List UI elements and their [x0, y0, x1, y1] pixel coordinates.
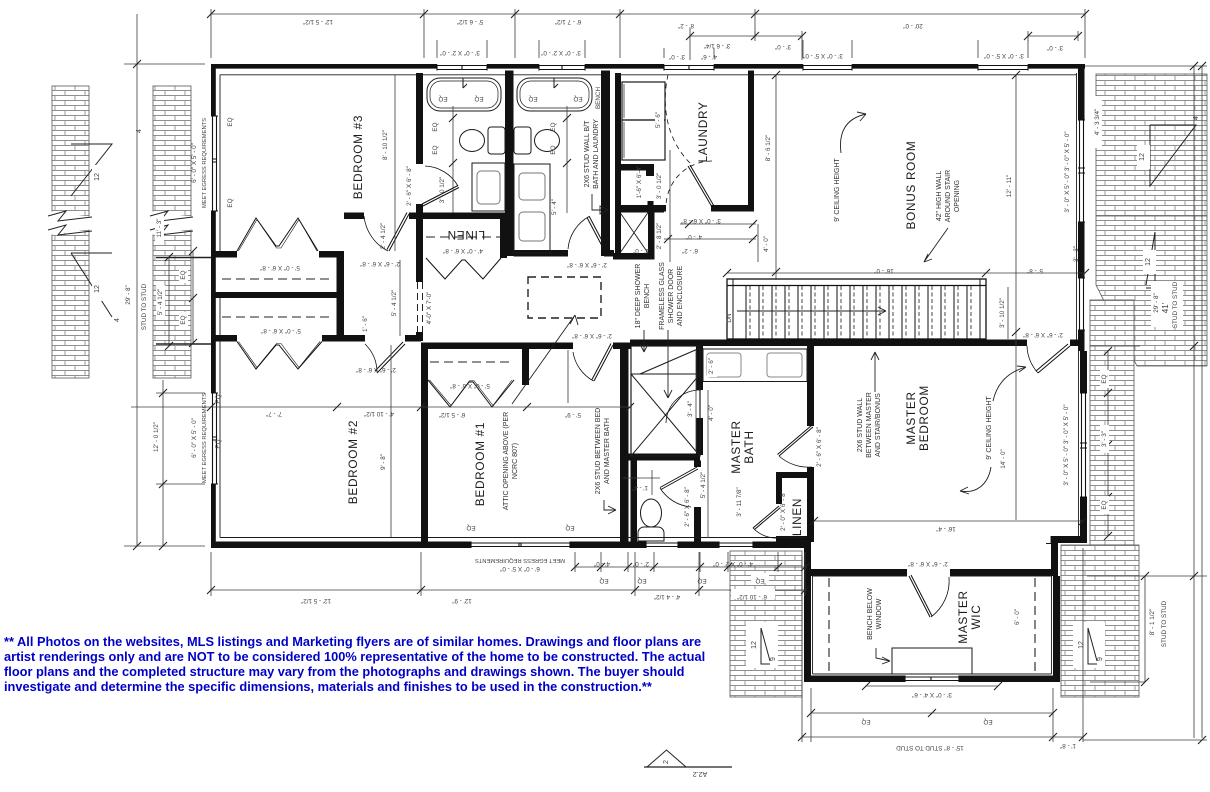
svg-text:2' - 6": 2' - 6" — [708, 358, 715, 374]
svg-text:2' - 0": 2' - 0" — [633, 560, 649, 567]
svg-text:8' - 2": 8' - 2" — [678, 22, 694, 29]
svg-text:5' - 4": 5' - 4" — [551, 199, 558, 215]
svg-text:14' - 0": 14' - 0" — [1000, 449, 1007, 469]
svg-text:STUD TO STUD: STUD TO STUD — [141, 283, 148, 330]
svg-text:EQ: EQ — [474, 95, 483, 102]
svg-text:3' - 0 1/2": 3' - 0 1/2" — [656, 173, 663, 200]
svg-text:2' - 0": 2' - 0" — [633, 247, 649, 254]
svg-text:8' - 10 1/2": 8' - 10 1/2" — [382, 130, 389, 160]
svg-text:9' CEILING HEIGHT: 9' CEILING HEIGHT — [986, 395, 993, 459]
svg-text:5' - 9": 5' - 9" — [565, 411, 581, 418]
svg-text:4' - 3 3/4": 4' - 3 3/4" — [1094, 109, 1101, 136]
svg-text:5' - 6 1/2": 5' - 6 1/2" — [457, 18, 484, 25]
svg-text:EQ: EQ — [599, 577, 608, 584]
svg-text:EQ: EQ — [697, 577, 706, 584]
svg-text:BEDROOM #2: BEDROOM #2 — [346, 420, 360, 504]
svg-text:9' - 8": 9' - 8" — [380, 454, 387, 470]
svg-text:12: 12 — [751, 641, 758, 649]
svg-text:12: 12 — [94, 173, 101, 181]
svg-text:3' - 0" X 5' - 0" 3' - 0" X 5: 3' - 0" X 5' - 0" 3' - 0" X 5' - 0" — [1063, 404, 1070, 485]
svg-text:LINEN: LINEN — [447, 228, 485, 242]
svg-text:MASTER: MASTER — [729, 420, 743, 473]
svg-text:3' - 0" X 2' - 0": 3' - 0" X 2' - 0" — [440, 49, 480, 56]
svg-text:EQ: EQ — [180, 315, 187, 324]
svg-text:6' - 10 1/2": 6' - 10 1/2" — [737, 593, 767, 600]
svg-text:STUD TO STUD: STUD TO STUD — [1172, 281, 1179, 328]
svg-text:18" DEEP SHOWER: 18" DEEP SHOWER — [635, 264, 642, 329]
svg-text:6' - 7 1/2": 6' - 7 1/2" — [555, 18, 582, 25]
svg-text:EQ: EQ — [550, 145, 557, 154]
svg-text:EQ: EQ — [755, 577, 764, 584]
svg-text:2' - 6" X 6' - 8": 2' - 6" X 6' - 8" — [360, 260, 400, 267]
svg-text:12: 12 — [1139, 153, 1146, 161]
svg-text:1' - 6": 1' - 6" — [362, 316, 369, 332]
svg-text:2' - 6" X 6' - 8": 2' - 6" X 6' - 8" — [567, 261, 607, 268]
svg-text:16' - 0": 16' - 0" — [874, 267, 894, 274]
svg-text:6' - 0" X 5' - 0": 6' - 0" X 5' - 0" — [191, 143, 198, 183]
svg-text:42" HIGH WALL: 42" HIGH WALL — [936, 171, 943, 222]
svg-text:12: 12 — [1078, 641, 1085, 649]
svg-text:12' - 11": 12' - 11" — [1006, 175, 1013, 198]
svg-text:artist renderings only and are: artist renderings only and are NOT to be… — [4, 649, 705, 664]
svg-text:ATTIC OPENING ABOVE (PER: ATTIC OPENING ABOVE (PER — [503, 412, 510, 510]
svg-text:floor plans and the completed: floor plans and the completed structure … — [4, 664, 684, 679]
svg-text:EQ: EQ — [227, 198, 234, 207]
svg-text:12' - 0 1/2": 12' - 0 1/2" — [153, 422, 160, 452]
svg-text:SHOWER DOOR: SHOWER DOOR — [668, 269, 675, 323]
svg-text:EQ: EQ — [565, 524, 574, 531]
svg-text:1' - 4": 1' - 4" — [632, 484, 648, 491]
svg-text:EQ: EQ — [215, 439, 222, 448]
svg-text:2' - 6" X 6' - 8": 2' - 6" X 6' - 8" — [816, 427, 823, 467]
svg-text:EQ: EQ — [573, 95, 582, 102]
svg-text:4' - 0" X 6' - 8": 4' - 0" X 6' - 8" — [443, 247, 483, 254]
svg-text:EQ: EQ — [432, 122, 439, 131]
svg-text:EQ: EQ — [528, 95, 537, 102]
svg-text:BENCH BELOW: BENCH BELOW — [867, 588, 874, 640]
svg-text:9: 9 — [770, 657, 777, 661]
svg-text:MEET EGRESS REQUIREMENTS: MEET EGRESS REQUIREMENTS — [202, 393, 208, 483]
svg-text:EQ: EQ — [550, 122, 557, 131]
svg-text:BENCH: BENCH — [595, 87, 602, 109]
svg-text:EQ: EQ — [1101, 500, 1108, 509]
svg-text:BEDROOM #1: BEDROOM #1 — [473, 422, 487, 506]
svg-text:2' - 6" X 6' - 8": 2' - 6" X 6' - 8" — [356, 366, 396, 373]
svg-text:investigate and determine the: investigate and determine the specific d… — [4, 679, 652, 694]
svg-text:4' - 0": 4' - 0" — [686, 233, 702, 240]
svg-text:4' - 0" X 2' - 0": 4' - 0" X 2' - 0" — [713, 560, 753, 567]
svg-text:3' - 0": 3' - 0" — [669, 53, 685, 60]
svg-text:6' - 0" X 5' - 0": 6' - 0" X 5' - 0" — [191, 418, 198, 458]
svg-text:2' - 6" X 6' - 8": 2' - 6" X 6' - 8" — [908, 560, 948, 567]
svg-text:6' - 0" X 5' - 0": 6' - 0" X 5' - 0" — [500, 565, 540, 572]
svg-text:3' - 6 1/4": 3' - 6 1/4" — [704, 42, 731, 49]
svg-text:BATH AND LAUNDRY: BATH AND LAUNDRY — [593, 119, 600, 189]
svg-text:5' - 4 1/2": 5' - 4 1/2" — [391, 290, 398, 317]
svg-text:9' CEILING HEIGHT: 9' CEILING HEIGHT — [834, 157, 841, 221]
svg-text:EQ: EQ — [466, 524, 475, 531]
svg-text:BATH: BATH — [742, 430, 756, 463]
svg-text:8' - 1 1/2": 8' - 1 1/2" — [1149, 609, 1156, 636]
svg-text:2X6 STUD WALL B/T: 2X6 STUD WALL B/T — [584, 120, 591, 188]
svg-text:EQ: EQ — [432, 145, 439, 154]
svg-text:2: 2 — [663, 760, 670, 764]
svg-text:3' - 0" X 5' - 0": 3' - 0" X 5' - 0" — [803, 52, 843, 59]
svg-text:BEDROOM #3: BEDROOM #3 — [351, 115, 365, 199]
svg-text:3' - 0" X 6' - 8": 3' - 0" X 6' - 8" — [681, 217, 721, 224]
svg-text:4' - 0": 4' - 0" — [708, 405, 715, 421]
svg-text:5' - 6": 5' - 6" — [655, 112, 662, 128]
svg-text:BONUS ROOM: BONUS ROOM — [904, 141, 918, 230]
svg-text:EQ: EQ — [215, 394, 222, 403]
svg-text:8' - 6 1/2": 8' - 6 1/2" — [765, 135, 772, 162]
svg-text:BETWEEN MASTER: BETWEEN MASTER — [866, 392, 873, 458]
svg-text:OPENING: OPENING — [954, 180, 961, 212]
svg-text:29' - 8": 29' - 8" — [125, 285, 132, 305]
svg-text:3' - 0" X 4' - 6": 3' - 0" X 4' - 6" — [912, 691, 952, 698]
svg-text:2' - 6" X 6' - 8": 2' - 6" X 6' - 8" — [572, 332, 612, 339]
svg-text:** All Photos on the websites,: ** All Photos on the websites, MLS listi… — [4, 634, 701, 649]
svg-text:DN: DN — [726, 313, 733, 323]
svg-text:5' - 0" X 6' - 8": 5' - 0" X 6' - 8" — [260, 264, 300, 271]
svg-text:AND MASTER BATH: AND MASTER BATH — [604, 418, 611, 484]
svg-text:6' - 0": 6' - 0" — [1014, 609, 1021, 625]
svg-text:3' - 0" X 2' - 0": 3' - 0" X 2' - 0" — [541, 49, 581, 56]
svg-text:12' - 5 1/2": 12' - 5 1/2" — [301, 597, 331, 604]
svg-text:1' - 8": 1' - 8" — [1060, 742, 1076, 749]
svg-text:41': 41' — [1161, 302, 1170, 313]
svg-text:12: 12 — [1145, 258, 1152, 266]
svg-text:12' - 9": 12' - 9" — [452, 597, 472, 604]
svg-text:A2.2: A2.2 — [693, 770, 708, 777]
svg-text:EQ: EQ — [180, 270, 187, 279]
svg-text:BENCH: BENCH — [644, 284, 651, 309]
svg-text:4' - 6": 4' - 6" — [701, 53, 717, 60]
svg-text:4' - 0": 4' - 0" — [594, 560, 610, 567]
svg-text:6' - 2": 6' - 2" — [682, 247, 698, 254]
svg-text:AND ENCLOSURE: AND ENCLOSURE — [677, 266, 684, 327]
svg-text:15' - 8" STUD TO STUD: 15' - 8" STUD TO STUD — [896, 744, 964, 751]
svg-text:EQ: EQ — [227, 117, 234, 126]
svg-text:4' - 0": 4' - 0" — [763, 236, 770, 252]
svg-text:2' - 0" X 6' - 8": 2' - 0" X 6' - 8" — [780, 491, 787, 531]
svg-text:EQ: EQ — [637, 577, 646, 584]
svg-text:11' - 3": 11' - 3" — [156, 218, 163, 237]
svg-text:12: 12 — [94, 285, 101, 293]
svg-text:3' - 3": 3' - 3" — [1101, 431, 1108, 447]
svg-text:2X6 STUD WALL: 2X6 STUD WALL — [857, 398, 864, 452]
svg-text:3' - 3": 3' - 3" — [1073, 246, 1080, 262]
svg-text:LINEN: LINEN — [790, 498, 804, 536]
svg-text:3' - 0": 3' - 0" — [1047, 44, 1063, 51]
svg-text:5' - 4 1/2": 5' - 4 1/2" — [157, 289, 164, 316]
svg-text:STUD TO STUD: STUD TO STUD — [1161, 600, 1168, 647]
svg-text:7' - 7": 7' - 7" — [266, 410, 282, 417]
svg-text:2X6 STUD BETWEEN BED: 2X6 STUD BETWEEN BED — [595, 408, 602, 494]
svg-text:WINDOW: WINDOW — [876, 598, 883, 629]
svg-text:AROUND STAIR: AROUND STAIR — [945, 170, 952, 222]
svg-text:2' - 6" X 6' - 8": 2' - 6" X 6' - 8" — [1023, 331, 1063, 338]
svg-text:3' - 0 1/2": 3' - 0 1/2" — [439, 177, 446, 204]
svg-text:2' - 8 1/2": 2' - 8 1/2" — [656, 223, 663, 250]
svg-text:12' - 5 1/2": 12' - 5 1/2" — [303, 18, 333, 25]
svg-text:AND STAIR/BONUS: AND STAIR/BONUS — [875, 393, 882, 457]
svg-text:FRAMELESS GLASS: FRAMELESS GLASS — [659, 262, 666, 330]
svg-text:EQ: EQ — [861, 718, 870, 725]
svg-text:3' - 11 7/8": 3' - 11 7/8" — [736, 487, 743, 517]
svg-text:29' - 8": 29' - 8" — [1153, 293, 1160, 313]
svg-text:EQ: EQ — [983, 718, 992, 725]
svg-text:4: 4 — [114, 318, 121, 322]
svg-text:2' - 6" X 6' - 8": 2' - 6" X 6' - 8" — [684, 487, 691, 527]
svg-text:EQ: EQ — [438, 95, 447, 102]
svg-text:5' - 8": 5' - 8" — [1027, 267, 1043, 274]
svg-text:4' - 10 1/2": 4' - 10 1/2" — [364, 410, 394, 417]
svg-text:1'-6" X 6'-4": 1'-6" X 6'-4" — [636, 166, 643, 199]
svg-text:MASTER: MASTER — [904, 391, 918, 444]
svg-text:MEET EGRESS REQUIREMENTS: MEET EGRESS REQUIREMENTS — [475, 557, 565, 563]
svg-text:LAUNDRY: LAUNDRY — [696, 101, 710, 162]
svg-text:3' - 0": 3' - 0" — [775, 43, 791, 50]
svg-text:MEET EGRESS REQUIREMENTS: MEET EGRESS REQUIREMENTS — [202, 118, 208, 208]
svg-text:16' - 4": 16' - 4" — [936, 525, 956, 532]
svg-text:3' - 4": 3' - 4" — [687, 401, 694, 417]
svg-text:9: 9 — [1097, 657, 1104, 661]
svg-text:3' - 0" X 5' - 0" 3' - 0" X 5: 3' - 0" X 5' - 0" 3' - 0" X 5' - 0" — [1064, 131, 1071, 212]
svg-text:3' - 0" X 5' - 0": 3' - 0" X 5' - 0" — [984, 52, 1024, 59]
svg-text:WIC: WIC — [969, 604, 983, 629]
svg-text:5' - 0" X 6' - 8": 5' - 0" X 6' - 8" — [450, 382, 490, 389]
svg-text:BEDROOM: BEDROOM — [917, 385, 931, 451]
svg-text:2' - 6" X 6' - 8": 2' - 6" X 6' - 8" — [406, 166, 413, 206]
svg-text:3' - 10 1/2": 3' - 10 1/2" — [999, 298, 1006, 328]
svg-text:4' - 4 1/2": 4' - 4 1/2" — [654, 593, 681, 600]
svg-text:20' - 0": 20' - 0" — [903, 22, 923, 29]
svg-text:EQ: EQ — [1101, 374, 1108, 383]
svg-text:6' - 5 1/2": 6' - 5 1/2" — [439, 411, 466, 418]
svg-text:4'-0" X 7'-0": 4'-0" X 7'-0" — [426, 292, 433, 325]
svg-text:5' - 4 1/2": 5' - 4 1/2" — [700, 472, 707, 499]
svg-text:5' - 0" X 6' - 8": 5' - 0" X 6' - 8" — [261, 327, 301, 334]
svg-text:2' - 4 1/2": 2' - 4 1/2" — [380, 223, 387, 250]
svg-text:NCRC 807): NCRC 807) — [512, 443, 519, 479]
svg-text:MASTER: MASTER — [956, 590, 970, 643]
